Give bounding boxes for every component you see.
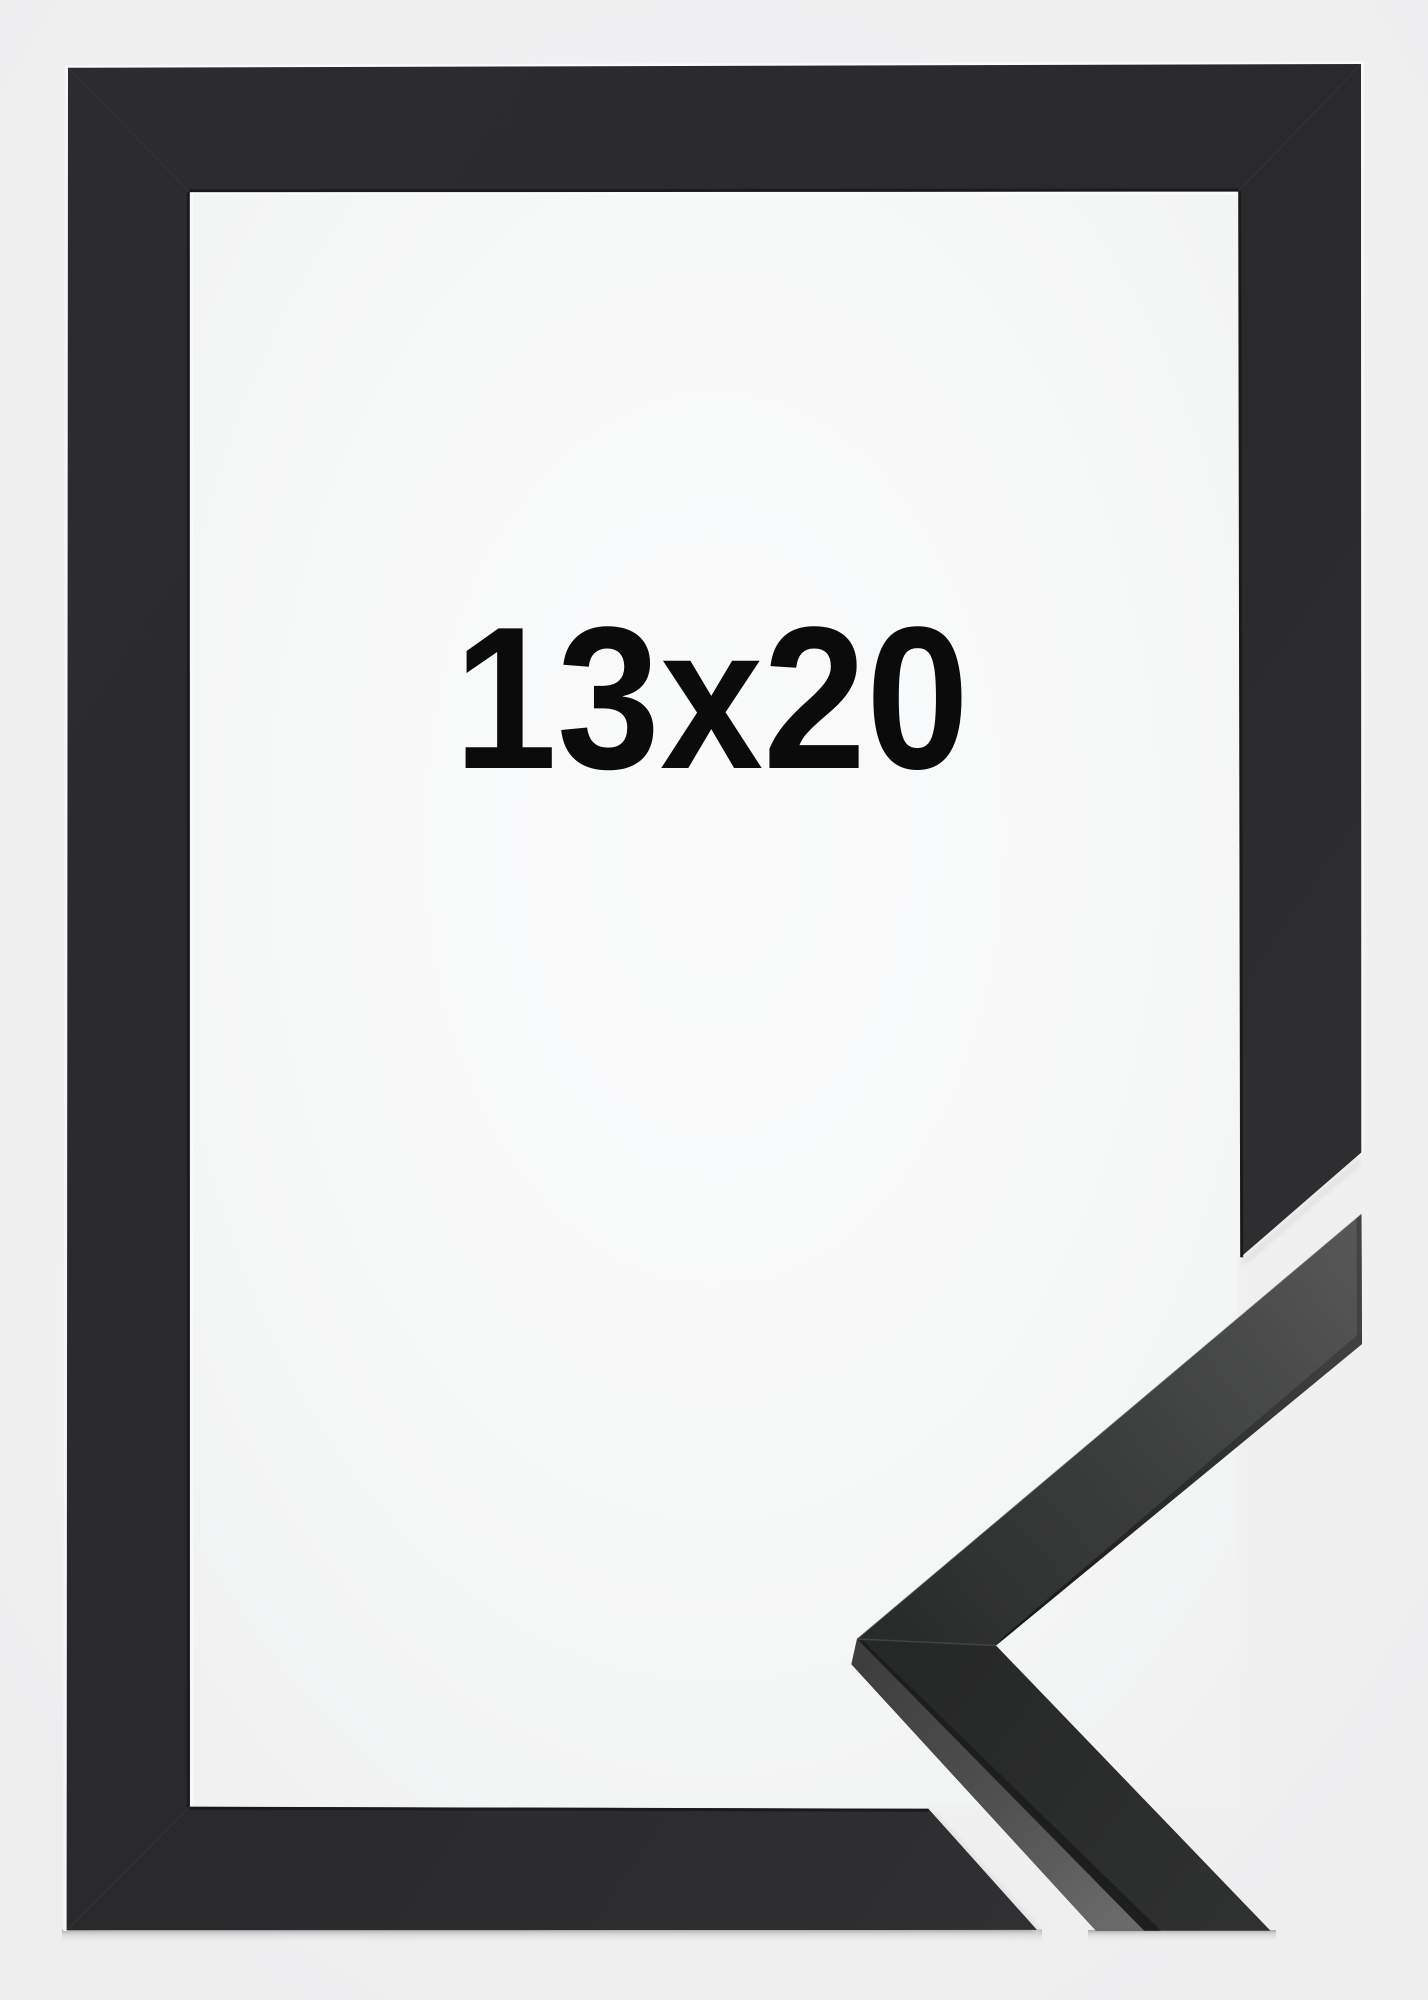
svg-text:13x20: 13x20 <box>454 585 969 812</box>
